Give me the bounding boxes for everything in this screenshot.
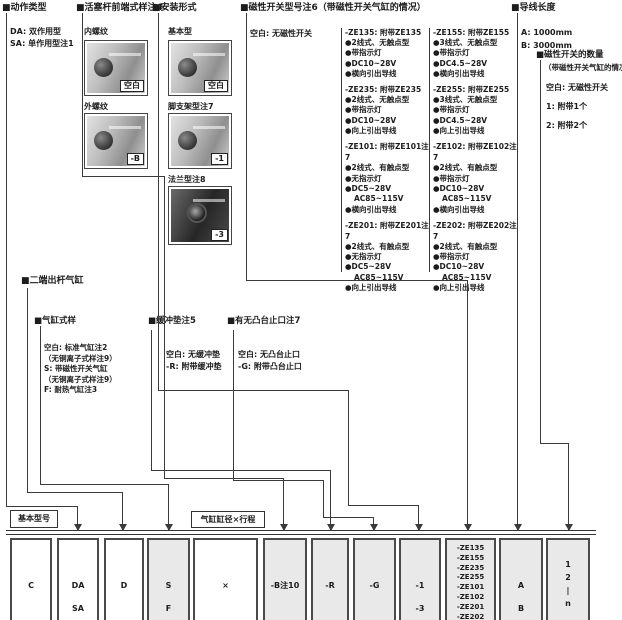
connector-line [6, 506, 77, 507]
connector-line [40, 484, 168, 485]
connector-line [283, 478, 284, 530]
boss-option: -G: 附带凸台止口 [238, 361, 302, 373]
arrow-down-icon [415, 524, 423, 531]
switch-none-option: 空白: 无磁性开关 [250, 28, 312, 40]
switch-model-spec: ●无指示灯 [345, 252, 433, 262]
action-type-option: SA: 单作用型注1 [10, 38, 74, 50]
model-code-box: -B注10 [263, 538, 307, 620]
cushion-options: 空白: 无缓冲垫-R: 附带缓冲垫 [166, 349, 221, 373]
section-title-boss: ■有无凸台止口注7 [227, 316, 300, 326]
cyl-style-option: S: 带磁性开关气缸 [44, 364, 117, 375]
model-code-text: F [166, 597, 171, 620]
connector-line [27, 288, 28, 492]
switch-model-spec: ●向上引出导线 [345, 126, 433, 136]
model-code-text: D [121, 580, 128, 592]
connector-line [82, 13, 83, 176]
switch-model-spec: ●向上引出导线 [433, 283, 521, 293]
switch-model-code: -ZE101: 附带ZE101注7 [345, 141, 433, 163]
arrow-down-icon [74, 524, 82, 531]
connector-line [158, 13, 159, 390]
model-code-text: B [518, 597, 524, 620]
switch-model-entry: -ZE101: 附带ZE101注7●2线式、有触点型●无指示灯●DC5~28VA… [345, 141, 433, 214]
switch-model-spec: ●带指示灯 [433, 48, 521, 58]
model-code-text: × [222, 580, 229, 592]
connector-line [40, 326, 41, 484]
section-title-rod-end: ■活塞杆前端式样注4 [76, 3, 163, 14]
switch-model-spec: ●DC10~28V [345, 59, 433, 69]
lead-length-option: A: 1000mm [521, 26, 572, 39]
mounting-flange-label: 法兰型注8 [168, 174, 206, 186]
connector-line [6, 13, 7, 506]
connector-line [164, 176, 165, 478]
switch-model-column-left: -ZE135: 附带ZE135●2线式、无触点型●带指示灯●DC10~28V●横… [345, 27, 433, 298]
cyl-style-option: F: 耐热气缸注3 [44, 385, 117, 396]
switch-model-spec: ●带指示灯 [345, 105, 433, 115]
model-code-text: -3 [416, 597, 425, 620]
mounting-basic-label: 基本型 [168, 26, 192, 38]
switch-model-code: -ZE135: 附带ZE135 [345, 27, 433, 38]
arrow-down-icon [370, 524, 378, 531]
table-top-rule [6, 530, 596, 535]
model-code-box: 12|n [546, 538, 590, 620]
mounting-basic-code: 空白 [204, 80, 228, 92]
model-code-text: | [567, 584, 570, 597]
switch-model-spec: AC85~115V [345, 273, 433, 283]
model-code-box: C [10, 538, 52, 620]
connector-line [568, 443, 569, 530]
switch-model-spec: ●带指示灯 [433, 252, 521, 262]
arrow-down-icon [280, 524, 288, 531]
section-title-double-rod: ■二端出杆气缸 [21, 276, 84, 287]
switch-model-entry: -ZE201: 附带ZE201注7●2线式、有触点型●无指示灯●DC5~28VA… [345, 220, 433, 293]
action-type-option: DA: 双作用型 [10, 26, 74, 38]
switch-model-spec: ●无指示灯 [345, 174, 433, 184]
switch-model-spec: ●2线式、无触点型 [345, 38, 433, 48]
model-code-text: A [518, 574, 524, 597]
switch-model-spec: ●DC5~28V [345, 184, 433, 194]
switch-model-spec: ●横向引出导线 [345, 205, 433, 215]
model-code-text: -G [370, 580, 380, 592]
bore-stroke-label: 气缸缸径×行程 [191, 511, 265, 528]
model-code-text: n [565, 597, 571, 610]
model-code-box: AB [499, 538, 543, 620]
model-code-box: -R [311, 538, 349, 620]
switch-model-spec: AC85~115V [433, 273, 521, 283]
cyl-style-option: （无铜离子式样注9） [44, 354, 117, 365]
model-code-text: SA [72, 597, 84, 620]
arrow-down-icon [565, 524, 573, 531]
switch-qty-subtitle: （带磁性开关气缸的情况） [544, 62, 622, 73]
switch-qty-option: 1: 附带1个 [546, 101, 608, 113]
section-title-switch-qty: ■磁性开关的数量 [536, 50, 604, 60]
arrow-down-icon [514, 524, 522, 531]
model-code-text: DA [72, 574, 85, 597]
switch-model-spec: ●2线式、有触点型 [345, 242, 433, 252]
switch-model-code: -ZE202: 附带ZE202注7 [433, 220, 521, 242]
switch-model-spec: ●3线式、无触点型 [433, 95, 521, 105]
cushion-option: 空白: 无缓冲垫 [166, 349, 221, 361]
lead-length-options: A: 1000mmB: 3000mm [521, 26, 572, 52]
model-code-text: S [166, 574, 172, 597]
switch-model-spec: ●DC4.5~28V [433, 116, 521, 126]
switch-model-spec: ●向上引出导线 [345, 283, 433, 293]
switch-model-spec: AC85~115V [433, 194, 521, 204]
mounting-foot-photo: -1 [168, 113, 232, 169]
connector-line [540, 60, 541, 443]
switch-model-spec: ●DC10~28V [345, 116, 433, 126]
connector-line [151, 470, 330, 471]
arrow-down-icon [165, 524, 173, 531]
section-title-cyl-style: ■气缸式样 [34, 316, 76, 326]
switch-qty-option: 2: 附带2个 [546, 120, 608, 132]
connector-line [246, 13, 247, 280]
connector-line [323, 480, 324, 517]
connector-line [27, 492, 122, 493]
mounting-flange-photo: -3 [168, 186, 232, 245]
ordering-diagram: ■动作类型 ■活塞杆前端式样注4 ■安装形式 ■磁性开关型号注6（带磁性开关气缸… [0, 0, 622, 620]
switch-model-entry: -ZE155: 附带ZE155●3线式、无触点型●带指示灯●DC4.5~28V●… [433, 27, 521, 79]
switch-model-column-right: -ZE155: 附带ZE155●3线式、无触点型●带指示灯●DC4.5~28V●… [433, 27, 521, 298]
section-title-switch-model: ■磁性开关型号注6（带磁性开关气缸的情况） [240, 3, 426, 14]
connector-line [164, 478, 283, 479]
internal-thread-photo: 空白 [84, 40, 148, 96]
mounting-basic-photo: 空白 [168, 40, 232, 96]
base-model-label: 基本型号 [10, 510, 58, 528]
cushion-option: -R: 附带缓冲垫 [166, 361, 221, 373]
connector-line [82, 176, 164, 177]
model-code-box: -G [353, 538, 396, 620]
switch-qty-option: 空白: 无磁性开关 [546, 82, 608, 94]
section-title-cushion: ■缓冲垫注5 [148, 316, 196, 326]
model-code-box: -ZE135-ZE155-ZE235-ZE255-ZE101-ZE102-ZE2… [445, 538, 496, 620]
rod-end-external-thread-label: 外螺纹 [84, 101, 108, 113]
section-title-action-type: ■动作类型 [2, 3, 47, 14]
connector-line [330, 470, 331, 530]
external-thread-code: -B [127, 153, 144, 165]
arrow-down-icon [327, 524, 335, 531]
connector-line [348, 390, 349, 505]
switch-model-spec: ●3线式、无触点型 [433, 38, 521, 48]
model-code-text: -ZE101 [457, 583, 484, 593]
switch-model-code: -ZE255: 附带ZE255 [433, 84, 521, 95]
model-code-text: -1 [416, 574, 425, 597]
connector-line [348, 505, 418, 506]
connector-line [151, 330, 152, 470]
model-code-text: -ZE155 [457, 554, 484, 564]
model-code-text: -ZE255 [457, 573, 484, 583]
model-code-box: -1-3 [399, 538, 441, 620]
cyl-style-option: 空白: 标准气缸注2 [44, 343, 117, 354]
external-thread-photo: -B [84, 113, 148, 169]
model-code-text: -ZE201 [457, 603, 484, 613]
connector-line [517, 13, 518, 530]
model-code-text: -R [325, 580, 334, 592]
mounting-flange-code: -3 [211, 229, 228, 241]
switch-model-spec: ●2线式、有触点型 [433, 242, 521, 252]
switch-model-spec: ●DC4.5~28V [433, 59, 521, 69]
model-code-text: -B注10 [271, 580, 300, 592]
switch-model-entry: -ZE255: 附带ZE255●3线式、无触点型●带指示灯●DC4.5~28V●… [433, 84, 521, 136]
switch-model-code: -ZE155: 附带ZE155 [433, 27, 521, 38]
cyl-style-options: 空白: 标准气缸注2（无铜离子式样注9）S: 带磁性开关气缸（无铜离子式样注9）… [44, 343, 117, 396]
switch-model-spec: ●2线式、无触点型 [345, 95, 433, 105]
model-code-text: -ZE102 [457, 593, 484, 603]
switch-model-spec: ●带指示灯 [433, 174, 521, 184]
cyl-style-option: （无铜离子式样注9） [44, 375, 117, 386]
model-code-box: × [193, 538, 258, 620]
boss-options: 空白: 无凸台止口-G: 附带凸台止口 [238, 349, 302, 373]
switch-model-spec: ●DC10~28V [433, 262, 521, 272]
connector-line [233, 480, 323, 481]
switch-model-spec: ●DC10~28V [433, 184, 521, 194]
switch-model-entry: -ZE135: 附带ZE135●2线式、无触点型●带指示灯●DC10~28V●横… [345, 27, 433, 79]
switch-model-spec: ●横向引出导线 [433, 69, 521, 79]
switch-qty-options: 空白: 无磁性开关1: 附带1个2: 附带2个 [546, 82, 608, 139]
connector-line [233, 330, 234, 480]
connector-line [323, 517, 373, 518]
connector-line [246, 280, 467, 281]
model-code-text: -ZE235 [457, 564, 484, 574]
arrow-down-icon [464, 524, 472, 531]
switch-model-code: -ZE235: 附带ZE235 [345, 84, 433, 95]
switch-model-code: -ZE102: 附带ZE102注7 [433, 141, 521, 163]
mounting-foot-code: -1 [211, 153, 228, 165]
connector-line [341, 28, 342, 272]
model-code-text: -ZE135 [457, 544, 484, 554]
connector-line [429, 28, 430, 272]
model-code-box: D [104, 538, 144, 620]
boss-option: 空白: 无凸台止口 [238, 349, 302, 361]
switch-model-spec: ●向上引出导线 [433, 126, 521, 136]
switch-model-entry: -ZE235: 附带ZE235●2线式、无触点型●带指示灯●DC10~28V●向… [345, 84, 433, 136]
switch-model-spec: ●2线式、有触点型 [433, 163, 521, 173]
action-type-options: DA: 双作用型SA: 单作用型注1 [10, 26, 74, 50]
model-code-text: 1 [565, 558, 571, 571]
model-code-box: DASA [57, 538, 99, 620]
switch-model-entry: -ZE102: 附带ZE102注7●2线式、有触点型●带指示灯●DC10~28V… [433, 141, 521, 214]
switch-model-spec: ●2线式、有触点型 [345, 163, 433, 173]
switch-model-code: -ZE201: 附带ZE201注7 [345, 220, 433, 242]
mounting-foot-label: 脚支架型注7 [168, 101, 214, 113]
arrow-down-icon [119, 524, 127, 531]
connector-line [158, 390, 348, 391]
switch-model-entry: -ZE202: 附带ZE202注7●2线式、有触点型●带指示灯●DC10~28V… [433, 220, 521, 293]
connector-line [540, 443, 568, 444]
switch-model-spec: ●横向引出导线 [433, 205, 521, 215]
model-code-text: 2 [565, 571, 571, 584]
switch-model-spec: ●带指示灯 [345, 48, 433, 58]
switch-model-spec: ●DC5~28V [345, 262, 433, 272]
switch-model-spec: ●横向引出导线 [345, 69, 433, 79]
internal-thread-code: 空白 [120, 80, 144, 92]
model-code-text: -ZE202 [457, 613, 484, 620]
connector-line [467, 280, 468, 530]
switch-model-spec: ●带指示灯 [433, 105, 521, 115]
model-code-box: SF [147, 538, 190, 620]
switch-model-spec: AC85~115V [345, 194, 433, 204]
rod-end-internal-thread-label: 内螺纹 [84, 26, 108, 38]
model-code-text: C [28, 580, 34, 592]
